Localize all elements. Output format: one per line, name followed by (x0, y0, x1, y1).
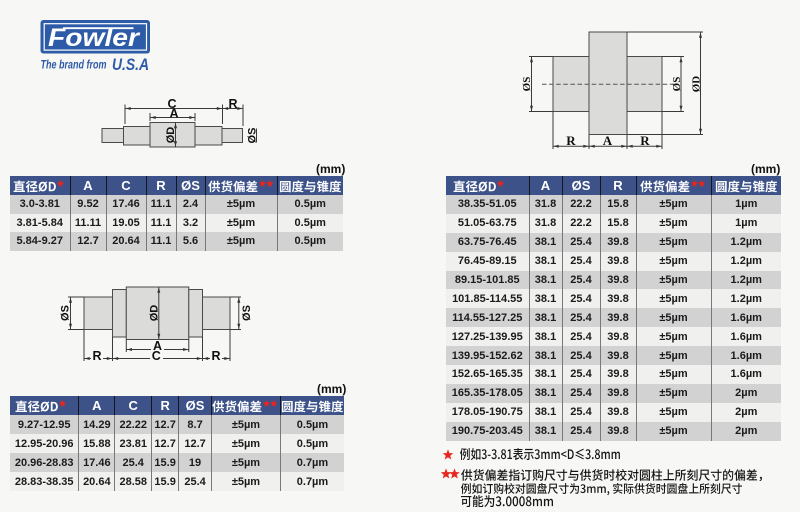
svg-text:The brand from: The brand from (41, 60, 107, 72)
svg-text:ØD: ØD (691, 76, 703, 93)
svg-text:A: A (169, 107, 178, 121)
svg-text:R: R (566, 133, 576, 148)
svg-text:ØS: ØS (671, 77, 683, 92)
svg-text:R: R (228, 97, 237, 111)
svg-text:A: A (603, 133, 613, 148)
svg-text:C: C (152, 349, 161, 363)
svg-text:ØS: ØS (60, 305, 72, 321)
svg-text:R: R (640, 133, 650, 148)
svg-text:ØS: ØS (521, 77, 533, 92)
svg-text:ØS: ØS (246, 128, 258, 144)
svg-text:R: R (92, 349, 101, 363)
svg-text:ØS: ØS (241, 305, 253, 321)
svg-text:ØD: ØD (165, 127, 177, 144)
svg-text:R: R (211, 349, 220, 363)
svg-text:U.S.A: U.S.A (112, 56, 149, 74)
svg-text:ØD: ØD (148, 305, 160, 322)
